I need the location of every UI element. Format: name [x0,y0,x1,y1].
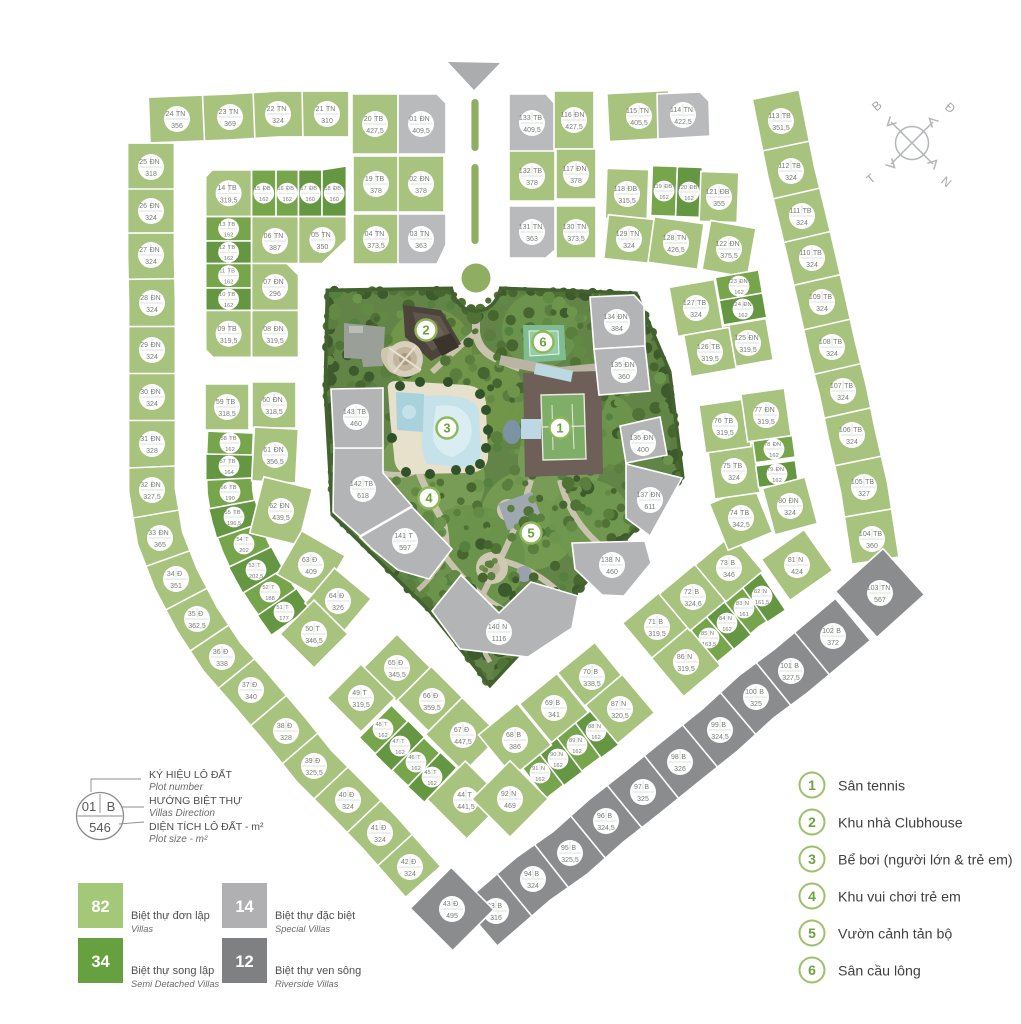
svg-text:350: 350 [317,244,329,251]
svg-text:87N: 87N [611,701,626,708]
svg-text:356: 356 [171,123,183,130]
svg-text:30ĐN: 30ĐN [140,389,160,396]
svg-text:360: 360 [866,543,878,550]
svg-text:319,5: 319,5 [266,338,284,345]
svg-text:55TB: 55TB [224,510,240,516]
svg-text:3: 3 [443,421,450,436]
svg-text:190: 190 [225,496,235,502]
svg-text:384: 384 [611,326,623,333]
svg-text:405,5: 405,5 [630,120,648,127]
svg-text:36Đ: 36Đ [213,649,228,656]
svg-text:101B: 101B [780,663,799,670]
svg-text:161: 161 [739,612,749,618]
svg-text:324,5: 324,5 [597,825,615,832]
svg-text:Plot number: Plot number [149,782,204,793]
svg-text:378: 378 [370,188,382,195]
svg-text:324: 324 [784,510,796,517]
svg-text:43Đ: 43Đ [443,901,458,908]
svg-text:62ĐN: 62ĐN [269,503,289,510]
svg-text:162: 162 [591,735,601,741]
svg-text:20TB: 20TB [364,116,384,123]
svg-text:318: 318 [145,171,157,178]
svg-text:324: 324 [806,262,818,269]
svg-text:162: 162 [572,749,582,755]
svg-text:Sân cầu lông: Sân cầu lông [838,964,921,980]
svg-text:341: 341 [548,712,560,719]
svg-text:324: 324 [374,837,386,844]
svg-text:23TN: 23TN [219,109,239,116]
svg-text:373,5: 373,5 [367,243,385,250]
svg-text:427,5: 427,5 [565,124,583,131]
svg-text:363: 363 [415,243,427,250]
svg-text:72B: 72B [684,589,699,596]
svg-text:328: 328 [280,735,292,742]
svg-text:21TN: 21TN [316,106,336,113]
svg-text:162: 162 [684,196,694,202]
svg-text:28ĐN: 28ĐN [140,295,160,302]
svg-text:375,5: 375,5 [720,253,738,260]
svg-text:86N: 86N [677,654,692,661]
svg-text:439,5: 439,5 [272,515,290,522]
svg-text:25ĐN: 25ĐN [139,159,159,166]
svg-text:369: 369 [224,121,236,128]
svg-text:94B: 94B [524,871,539,878]
svg-text:49T: 49T [352,690,367,697]
svg-text:355: 355 [713,201,725,208]
svg-text:327: 327 [858,491,870,498]
svg-text:58TB: 58TB [220,436,236,442]
svg-text:365: 365 [154,542,166,549]
svg-text:1116: 1116 [492,636,507,643]
svg-text:319,5: 319,5 [677,666,695,673]
svg-text:Khu nhà Clubhouse: Khu nhà Clubhouse [838,816,963,832]
svg-text:22TN: 22TN [267,106,287,113]
svg-text:60ĐN: 60ĐN [262,397,282,404]
svg-text:324: 324 [146,401,158,408]
svg-text:162: 162 [378,733,388,739]
svg-text:160: 160 [329,197,339,203]
svg-text:97B: 97B [634,784,649,791]
svg-text:319,5: 319,5 [716,430,734,437]
svg-text:34: 34 [91,953,110,971]
svg-text:359,5: 359,5 [423,705,441,712]
svg-text:346: 346 [723,572,735,579]
svg-text:35Đ: 35Đ [188,611,203,618]
svg-text:161,5: 161,5 [755,600,769,606]
svg-text:177: 177 [279,616,289,622]
svg-text:324: 324 [623,243,635,250]
svg-text:Biệt thự ven sông: Biệt thự ven sông [275,965,361,977]
svg-text:41Đ: 41Đ [371,825,386,832]
svg-text:32ĐN: 32ĐN [140,482,160,489]
svg-text:320,5: 320,5 [611,713,629,720]
svg-text:324: 324 [404,871,416,878]
svg-text:162: 162 [224,233,234,239]
svg-text:16ĐB: 16ĐB [277,186,294,192]
svg-text:324: 324 [146,307,158,314]
svg-text:460: 460 [606,569,618,576]
svg-text:373,5: 373,5 [567,236,585,243]
svg-text:338: 338 [216,661,228,668]
svg-text:160: 160 [305,197,315,203]
svg-text:319,5: 319,5 [701,356,719,363]
svg-text:Biệt thự đặc biệt: Biệt thự đặc biệt [275,910,355,922]
svg-text:Riverside Villas: Riverside Villas [275,979,339,989]
svg-text:15ĐB: 15ĐB [254,186,271,192]
svg-text:71B: 71B [648,619,663,626]
svg-text:342,5: 342,5 [732,522,750,529]
svg-text:67Đ: 67Đ [454,727,469,734]
svg-text:66Đ: 66Đ [423,693,438,700]
svg-text:37Đ: 37Đ [242,682,257,689]
svg-text:378: 378 [570,178,582,185]
svg-text:26ĐN: 26ĐN [139,203,159,210]
svg-text:324: 324 [146,354,158,361]
svg-text:351,5: 351,5 [772,125,790,132]
svg-text:460: 460 [350,421,362,428]
svg-text:346,5: 346,5 [305,638,323,645]
svg-text:345,5: 345,5 [388,672,406,679]
svg-text:07ĐN: 07ĐN [263,279,283,286]
svg-text:1: 1 [808,777,816,793]
svg-text:316: 316 [490,915,502,922]
svg-text:351: 351 [170,583,182,590]
svg-text:KÝ HIỆU LÔ ĐẤT: KÝ HIỆU LÔ ĐẤT [149,768,232,781]
svg-text:325,5: 325,5 [561,857,579,864]
svg-text:Plot size - m²: Plot size - m² [149,834,208,845]
svg-text:18ĐB: 18ĐB [324,186,341,192]
svg-text:1: 1 [556,421,563,436]
svg-text:597: 597 [399,545,411,552]
svg-text:162: 162 [734,290,744,296]
svg-text:324: 324 [342,804,354,811]
svg-text:02ĐN: 02ĐN [409,176,429,183]
svg-text:324: 324 [785,175,797,182]
svg-text:318,5: 318,5 [265,409,283,416]
svg-text:80ĐN: 80ĐN [778,498,798,505]
svg-text:162: 162 [411,766,421,772]
svg-text:100B: 100B [745,689,764,696]
svg-text:10TB: 10TB [219,292,235,298]
svg-text:68B: 68B [506,732,521,739]
svg-text:319,5: 319,5 [352,702,370,709]
svg-text:327,5: 327,5 [782,675,800,682]
svg-text:65Đ: 65Đ [388,660,403,667]
svg-text:372: 372 [827,640,839,647]
svg-text:79ĐN: 79ĐN [767,467,784,473]
svg-text:99B: 99B [711,722,726,729]
svg-text:360: 360 [618,374,630,381]
svg-text:61ĐN: 61ĐN [263,447,283,454]
svg-text:24TN: 24TN [166,111,186,118]
svg-text:387: 387 [269,245,281,252]
svg-text:73B: 73B [720,560,735,567]
svg-text:69B: 69B [545,700,560,707]
svg-text:08ĐN: 08ĐN [263,326,283,333]
svg-text:319,5: 319,5 [739,347,757,354]
svg-text:19TB: 19TB [365,176,385,183]
svg-text:14: 14 [235,898,254,916]
svg-text:447,5: 447,5 [454,739,472,746]
svg-text:324: 324 [826,351,838,358]
svg-text:64Đ: 64Đ [329,593,344,600]
svg-text:162: 162 [225,447,235,453]
svg-text:162: 162 [224,256,234,262]
svg-text:202: 202 [239,548,249,554]
svg-text:495: 495 [446,913,458,920]
svg-text:4: 4 [808,888,816,904]
svg-text:Villas Direction: Villas Direction [149,808,215,819]
svg-text:39Đ: 39Đ [305,758,320,765]
svg-text:324: 324 [145,259,157,266]
svg-text:340: 340 [245,694,257,701]
svg-text:162: 162 [738,313,748,319]
svg-text:409,5: 409,5 [412,128,430,135]
svg-text:422,5: 422,5 [674,119,692,126]
svg-text:296: 296 [269,291,281,298]
svg-text:B: B [107,799,116,814]
svg-text:3: 3 [808,851,816,867]
svg-text:310: 310 [321,118,333,125]
svg-text:Khu vui chơi trẻ em: Khu vui chơi trẻ em [838,890,961,906]
svg-text:162: 162 [395,750,405,756]
svg-text:424: 424 [791,569,803,576]
svg-text:Semi Detached Villas: Semi Detached Villas [131,979,220,989]
svg-text:325: 325 [637,796,649,803]
svg-text:318,5: 318,5 [218,411,236,418]
svg-text:162: 162 [535,777,545,783]
svg-text:76TB: 76TB [714,418,734,425]
svg-text:14TB: 14TB [217,185,237,192]
svg-text:362,5: 362,5 [188,623,206,630]
svg-text:162: 162 [659,195,669,201]
svg-text:324: 324 [527,883,539,890]
svg-text:196,5: 196,5 [227,521,241,527]
svg-text:162: 162 [769,453,779,459]
svg-text:98B: 98B [671,754,686,761]
svg-text:324,5: 324,5 [711,734,729,741]
svg-text:12TB: 12TB [219,245,235,251]
svg-text:162: 162 [722,627,732,633]
svg-text:324: 324 [272,118,284,125]
svg-text:5: 5 [527,526,534,541]
svg-text:82: 82 [91,898,109,916]
svg-text:324: 324 [690,312,702,319]
svg-text:70B: 70B [583,669,598,676]
svg-text:75TB: 75TB [723,463,743,470]
svg-text:409: 409 [305,569,317,576]
svg-text:188: 188 [265,596,275,602]
svg-text:HƯỚNG BIỆT THỰ: HƯỚNG BIỆT THỰ [149,794,242,807]
svg-text:363: 363 [526,236,538,243]
svg-text:400: 400 [637,447,649,454]
svg-text:4: 4 [425,491,433,506]
svg-text:95B: 95B [561,845,576,852]
svg-text:378: 378 [415,188,427,195]
svg-text:164: 164 [224,470,234,476]
svg-text:Special Villas: Special Villas [275,924,330,934]
svg-text:324: 324 [796,220,808,227]
svg-text:567: 567 [874,597,886,604]
svg-text:01ĐN: 01ĐN [409,116,429,123]
svg-text:Villas: Villas [131,924,153,934]
svg-text:6: 6 [539,335,546,350]
svg-text:378: 378 [526,180,538,187]
svg-text:74TB: 74TB [730,510,750,517]
svg-text:426,5: 426,5 [667,247,685,254]
svg-text:5: 5 [808,925,816,941]
svg-text:319,5: 319,5 [757,419,775,426]
svg-text:38Đ: 38Đ [277,723,292,730]
svg-text:6: 6 [808,962,816,978]
svg-text:34Đ: 34Đ [167,571,182,578]
svg-text:102B: 102B [822,628,841,635]
svg-text:31ĐN: 31ĐN [140,436,160,443]
svg-text:Biệt thự đơn lập: Biệt thự đơn lập [131,910,210,922]
svg-text:324,6: 324,6 [684,601,702,608]
svg-text:324: 324 [728,475,740,482]
svg-text:42Đ: 42Đ [401,859,416,866]
svg-text:44T: 44T [457,792,472,799]
svg-text:338,5: 338,5 [583,681,601,688]
svg-text:Bể bơi (người lớn & trẻ em): Bể bơi (người lớn & trẻ em) [838,853,1013,869]
svg-text:12: 12 [235,953,253,971]
svg-text:202,5: 202,5 [249,574,263,580]
svg-text:2: 2 [808,814,816,830]
svg-text:92N: 92N [501,791,516,798]
svg-text:469: 469 [504,803,516,810]
svg-text:77ĐN: 77ĐN [754,407,774,414]
svg-text:Sân tennis: Sân tennis [838,779,905,795]
svg-text:618: 618 [357,493,369,500]
svg-text:319,5: 319,5 [220,197,238,204]
svg-text:326: 326 [674,766,686,773]
svg-text:441,5: 441,5 [457,804,475,811]
svg-text:63Đ: 63Đ [302,557,317,564]
svg-text:29ĐN: 29ĐN [140,342,160,349]
svg-text:162: 162 [427,781,437,787]
svg-text:04TN: 04TN [365,231,385,238]
svg-text:162: 162 [282,197,292,203]
svg-text:546: 546 [89,820,111,835]
svg-text:Biệt thự song lập: Biệt thự song lập [131,965,214,977]
svg-text:328: 328 [146,448,158,455]
svg-text:27ĐN: 27ĐN [139,247,159,254]
svg-text:140N: 140N [488,624,507,631]
svg-text:324: 324 [846,439,858,446]
svg-text:319,5: 319,5 [648,631,666,638]
svg-text:59TB: 59TB [216,399,236,406]
svg-text:324: 324 [816,306,828,313]
svg-text:162: 162 [224,280,234,286]
svg-text:05TN: 05TN [311,232,331,239]
svg-text:01: 01 [82,799,96,814]
svg-text:33ĐN: 33ĐN [148,530,168,537]
svg-text:78ĐN: 78ĐN [764,442,781,448]
svg-text:13TB: 13TB [219,222,235,228]
svg-text:96B: 96B [597,813,612,820]
svg-text:11TB: 11TB [219,269,235,275]
svg-text:2: 2 [422,323,429,338]
svg-text:326: 326 [332,605,344,612]
svg-text:356,5: 356,5 [266,459,284,466]
svg-text:81N: 81N [788,557,803,564]
svg-text:40Đ: 40Đ [339,792,354,799]
svg-text:409,5: 409,5 [523,127,541,134]
svg-text:56TB: 56TB [220,485,236,491]
svg-text:57TB: 57TB [219,459,235,465]
svg-text:DIỆN TÍCH LÔ ĐẤT - m²: DIỆN TÍCH LÔ ĐẤT - m² [149,820,264,833]
svg-text:325,5: 325,5 [305,770,323,777]
svg-text:141T: 141T [394,533,413,540]
svg-text:50T: 50T [305,626,320,633]
svg-text:138N: 138N [601,557,620,564]
svg-text:319,5: 319,5 [220,338,238,345]
svg-text:09TB: 09TB [217,326,237,333]
svg-text:324: 324 [145,215,157,222]
svg-text:Vườn cảnh tản bộ: Vườn cảnh tản bộ [838,927,952,943]
svg-text:324: 324 [837,395,849,402]
svg-text:386: 386 [509,744,521,751]
svg-text:427,5: 427,5 [366,128,384,135]
svg-text:162: 162 [259,197,269,203]
svg-text:325: 325 [750,701,762,708]
svg-text:162: 162 [224,303,234,309]
svg-text:327,5: 327,5 [143,494,161,501]
svg-text:06TN: 06TN [264,233,284,240]
svg-text:03TN: 03TN [410,231,430,238]
svg-text:611: 611 [644,504,655,511]
svg-text:17ĐB: 17ĐB [300,186,317,192]
svg-text:315,5: 315,5 [618,198,636,205]
svg-text:162: 162 [553,763,563,769]
